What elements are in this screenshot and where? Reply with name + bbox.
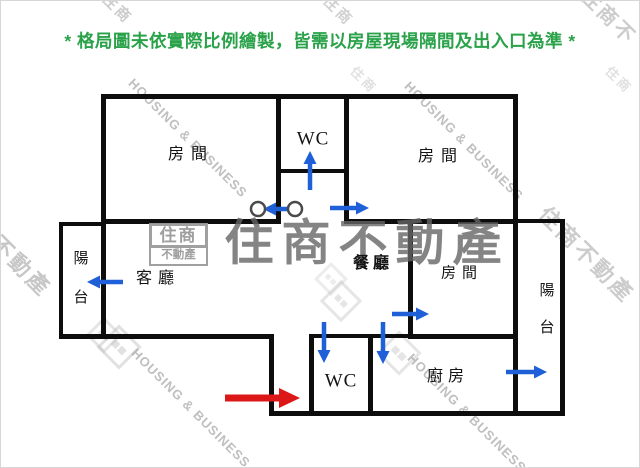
arrow-wc-bottom-door bbox=[318, 322, 331, 363]
door-hinge-circle-left bbox=[251, 202, 265, 216]
arrow-balcony-right-window bbox=[506, 366, 547, 379]
arrow-entrance bbox=[225, 388, 300, 408]
arrows-layer bbox=[1, 1, 640, 468]
arrow-kitchen-door bbox=[377, 322, 390, 364]
floorplan-image: * 格局圖未依實際比例繪製，皆需以房屋現場隔間及出入口為準 * HOUSING … bbox=[0, 0, 640, 468]
arrow-door-swing bbox=[263, 203, 289, 216]
arrow-bedroom-top-right-door bbox=[330, 202, 369, 215]
door-hinge-circle-right bbox=[288, 202, 302, 216]
disclaimer-text: * 格局圖未依實際比例繪製，皆需以房屋現場隔間及出入口為準 * bbox=[1, 28, 639, 53]
arrow-bedroom-mid-right-door bbox=[392, 308, 429, 321]
arrow-balcony-left-window bbox=[87, 276, 123, 289]
arrow-wc-top-door bbox=[304, 151, 317, 190]
